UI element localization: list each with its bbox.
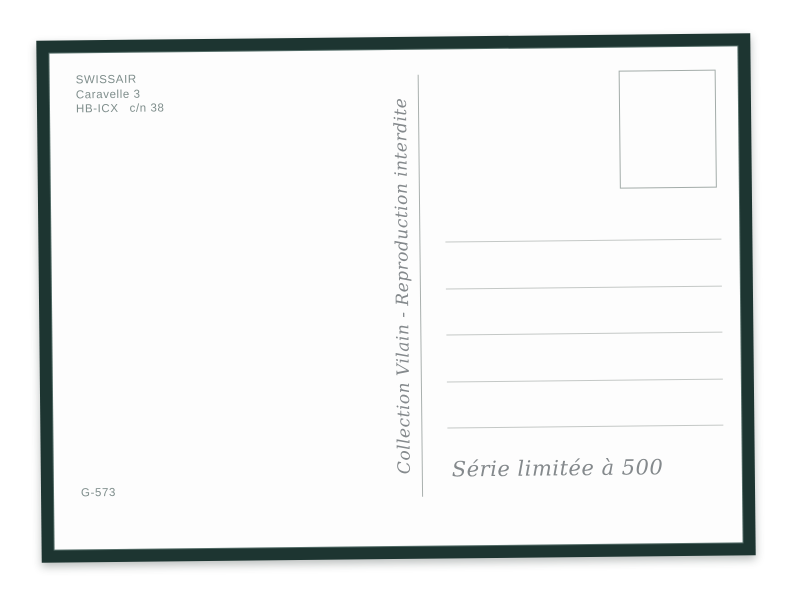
address-line [445, 239, 721, 243]
postcard-scan: SWISSAIR Caravelle 3 HB-ICXc/n 38 Collec… [0, 0, 800, 600]
aircraft-caption: SWISSAIR Caravelle 3 HB-ICXc/n 38 [76, 72, 165, 116]
address-line [447, 425, 723, 429]
address-line [446, 332, 722, 336]
aircraft-type: Caravelle 3 [76, 87, 165, 102]
construction-number: c/n 38 [130, 102, 165, 114]
stamp-box [619, 70, 717, 189]
registration-line: HB-ICXc/n 38 [76, 101, 165, 116]
address-line [446, 285, 722, 289]
catalog-number: G-573 [81, 487, 116, 499]
airline-name: SWISSAIR [76, 72, 165, 87]
postcard-frame: SWISSAIR Caravelle 3 HB-ICXc/n 38 Collec… [36, 33, 755, 562]
address-line [447, 378, 723, 382]
collection-credit-wrap: Collection Vilain - Reproduction interdi… [384, 75, 422, 497]
address-lines [445, 239, 723, 429]
collection-credit: Collection Vilain - Reproduction interdi… [391, 98, 415, 475]
aircraft-registration: HB-ICX [76, 103, 119, 115]
series-note: Série limitée à 500 [452, 455, 664, 481]
postcard-back: SWISSAIR Caravelle 3 HB-ICXc/n 38 Collec… [49, 46, 742, 549]
